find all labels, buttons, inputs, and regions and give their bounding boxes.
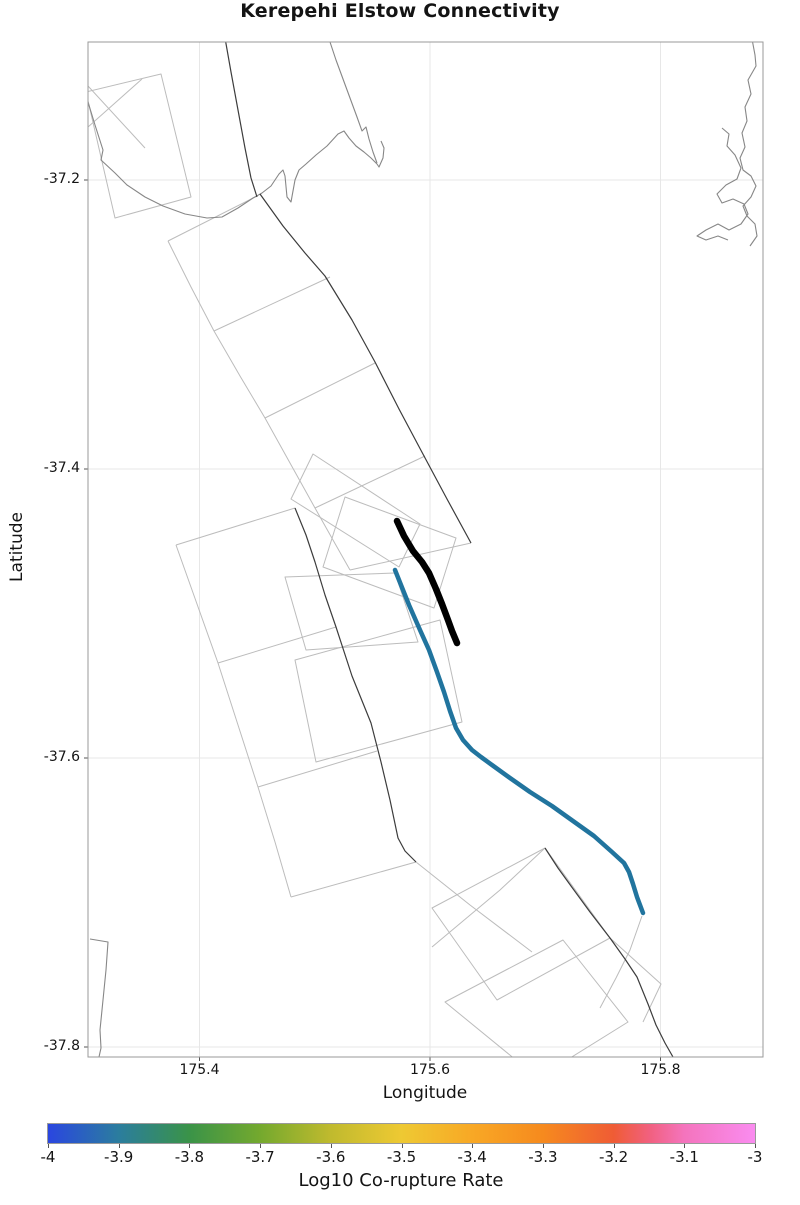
fault-trace bbox=[225, 38, 257, 197]
fault-trace bbox=[295, 508, 416, 862]
map-canvas bbox=[0, 0, 800, 1205]
fault-section-outline bbox=[168, 196, 257, 241]
fault-section-outline bbox=[295, 620, 462, 762]
map-layers bbox=[86, 38, 757, 1078]
fault-section-outline bbox=[285, 573, 418, 650]
coastline bbox=[330, 42, 377, 163]
fault-section-outline bbox=[214, 277, 330, 331]
colorbar-tick-label: -3.8 bbox=[175, 1148, 204, 1166]
colorbar-tick-label: -3.6 bbox=[316, 1148, 345, 1166]
subject-section-line bbox=[397, 521, 457, 643]
fault-section-outline bbox=[168, 241, 350, 570]
x-tick-label: 175.6 bbox=[410, 1062, 450, 1078]
y-tick-label: -37.8 bbox=[0, 1038, 80, 1054]
colorbar-tick-label: -3.4 bbox=[458, 1148, 487, 1166]
y-axis-label: Latitude bbox=[7, 512, 27, 582]
fault-section-outline bbox=[218, 627, 336, 663]
coastline bbox=[697, 128, 748, 240]
axis-tick-marks bbox=[84, 180, 661, 1061]
y-tick-label: -37.2 bbox=[0, 171, 80, 187]
fault-section-outline bbox=[291, 454, 420, 567]
y-tick-label: -37.6 bbox=[0, 749, 80, 765]
coastline bbox=[740, 39, 757, 246]
colorbar-tick-label: -3.2 bbox=[599, 1148, 628, 1166]
y-tick-label: -37.4 bbox=[0, 460, 80, 476]
fault-section-outline bbox=[315, 456, 425, 508]
plot-border bbox=[88, 42, 763, 1057]
fault-section-outline bbox=[88, 79, 142, 127]
coastline bbox=[90, 939, 108, 1057]
fault-section-outline bbox=[258, 751, 377, 787]
colorbar-tick-label: -3.9 bbox=[104, 1148, 133, 1166]
colorbar-tick-label: -3.7 bbox=[245, 1148, 274, 1166]
colorbar-tick-label: -3.5 bbox=[387, 1148, 416, 1166]
colorbar-tick-label: -3.3 bbox=[528, 1148, 557, 1166]
colorbar-gradient bbox=[47, 1123, 756, 1144]
x-tick-label: 175.8 bbox=[640, 1062, 680, 1078]
grid-lines bbox=[88, 42, 763, 1057]
colorbar-label: Log10 Co-rupture Rate bbox=[299, 1170, 504, 1191]
fault-trace bbox=[545, 848, 673, 1057]
fault-section-outline bbox=[176, 545, 291, 897]
fault-section-outline bbox=[176, 508, 295, 545]
fault-section-outline bbox=[432, 848, 545, 947]
coastline bbox=[88, 102, 384, 218]
fault-trace bbox=[260, 194, 471, 543]
fault-section-outline bbox=[265, 363, 375, 418]
colorbar-tick-label: -4 bbox=[41, 1148, 56, 1166]
x-axis-label: Longitude bbox=[383, 1083, 468, 1103]
fault-section-outline bbox=[291, 862, 416, 897]
colorbar-tick-label: -3.1 bbox=[670, 1148, 699, 1166]
x-tick-label: 175.4 bbox=[179, 1062, 219, 1078]
colorbar-tick-label: -3 bbox=[748, 1148, 763, 1166]
